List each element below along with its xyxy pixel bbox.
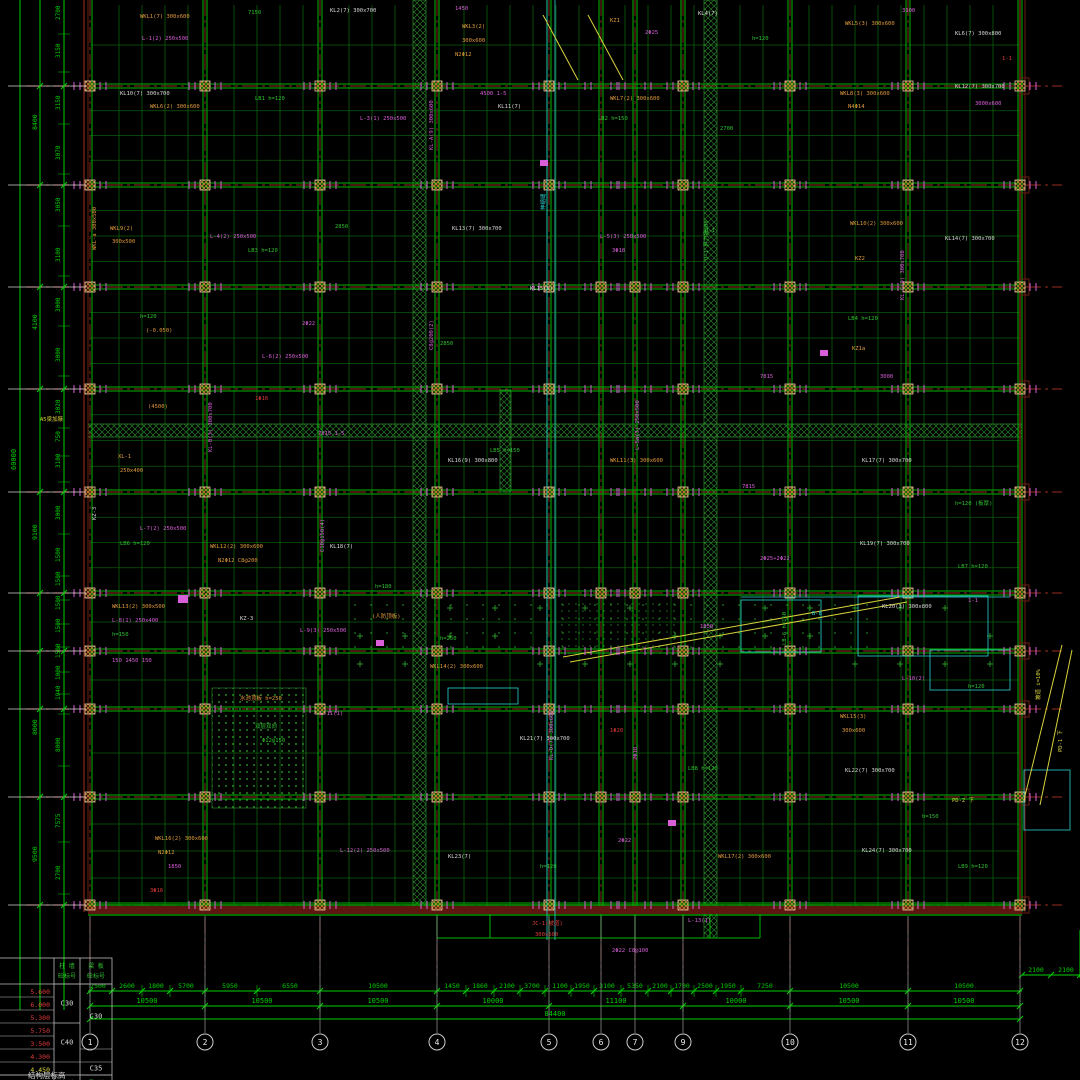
dim-label: 1700 [674, 982, 690, 990]
column-block [903, 646, 913, 656]
column-block [678, 900, 688, 910]
dim-label: 3000 [55, 297, 62, 312]
svg-text:梁 板: 梁 板 [88, 962, 104, 970]
beam-annotation: KZ-3 [240, 616, 253, 622]
beam-annotation: LB6 h=120 [120, 541, 150, 547]
beam-annotation: KL13(7) 300x700 [452, 226, 502, 232]
dim-label: 5950 [222, 982, 238, 990]
column-block [1015, 282, 1025, 292]
overall-dim-bottom: 84400 [544, 1010, 565, 1018]
column-block [1015, 704, 1025, 714]
svg-text:2100: 2100 [1028, 966, 1044, 974]
beam-annotation-vertical: C8@200(2) [429, 320, 435, 350]
column-block [200, 588, 210, 598]
column-block [315, 384, 325, 394]
beam-annotation: LB3 h=120 [248, 248, 278, 254]
concrete-grade: C40 [61, 1039, 74, 1047]
dim-label: 3050 [55, 197, 62, 212]
beam-annotation: h=120 [752, 36, 769, 42]
beam-annotation: B-B [812, 611, 823, 617]
column-block [785, 180, 795, 190]
beam-annotation: WKL15(3) [840, 714, 867, 720]
dim-label: 10500 [368, 982, 388, 990]
beam-annotation: 4500 1-5 [480, 91, 507, 97]
beam-annotation-vertical: KL-C(9) 300x700 [900, 250, 906, 300]
column-block [200, 704, 210, 714]
beam-annotation: KL6(7) 300x800 [955, 31, 1001, 37]
grid-bubble-label: 7 [633, 1038, 638, 1047]
dim-label: 750 [55, 431, 62, 442]
beam-annotation: KL23(7) [448, 854, 471, 860]
beam-annotation-vertical: L-5a(3) 250x500 [635, 400, 641, 450]
beam-annotation: 2850 [335, 224, 348, 230]
elevation-value: 3.500 [30, 1040, 50, 1048]
beam-annotation: KL15(9) [530, 286, 553, 292]
column-block [785, 384, 795, 394]
beam-annotation: Φ12@150 [262, 738, 285, 744]
beam-annotation: WKL14(2) 300x600 [430, 664, 483, 670]
grid-bubble-label: 2 [203, 1038, 208, 1047]
column-block [1015, 900, 1025, 910]
column-block [1015, 588, 1025, 598]
beam-annotation: h=250 [440, 636, 457, 642]
dim-label: 5700 [178, 982, 194, 990]
beam-annotation: 2700 [720, 126, 733, 132]
dim-label: 10000 [725, 997, 746, 1005]
column-block [315, 646, 325, 656]
beam-annotation-vertical: KL-D(7) 300x600 [549, 710, 555, 760]
column-block [903, 704, 913, 714]
beam-annotation: 1Φ16 [255, 396, 268, 402]
elevation-value: 4.300 [30, 1053, 50, 1061]
beam-annotation: (人防顶板) [372, 612, 401, 620]
beam-annotation: WKL7(2) 300x600 [610, 96, 660, 102]
column-block [678, 282, 688, 292]
column-block [432, 81, 442, 91]
beam-annotation: KL22(7) 300x700 [845, 768, 895, 774]
dim-label: 3000 [55, 505, 62, 520]
beam-annotation: KL12(7) 300x700 [955, 84, 1005, 90]
column-block [678, 588, 688, 598]
column-block [315, 81, 325, 91]
column-block [200, 384, 210, 394]
dim-label: 2700 [55, 5, 62, 20]
beam-annotation: L-4(2) 250x500 [210, 234, 256, 240]
grid-bubble-label: 6 [599, 1038, 604, 1047]
beam-annotation: KL20(3) 300x800 [882, 604, 932, 610]
grid-bubble-label: 5 [547, 1038, 552, 1047]
dim-label: 3150 [55, 95, 62, 110]
beam-annotation: 2Φ22 [302, 321, 315, 327]
beam-annotation: N4Φ14 [848, 104, 865, 110]
column-block [785, 792, 795, 802]
column-block [1015, 646, 1025, 656]
column-block [596, 792, 606, 802]
beam-annotation: WKL8(3) 300x600 [840, 91, 890, 97]
beam-annotation: 3Φ16 [150, 888, 163, 894]
concrete-grade: C30 [61, 1000, 74, 1008]
beam-annotation-vertical: 伸缩缝 [539, 193, 547, 210]
column-block [85, 588, 95, 598]
column-block [630, 282, 640, 292]
svg-text:砼标号: 砼标号 [87, 972, 105, 980]
beam-annotation: KL18(7) [330, 544, 353, 550]
column-block [85, 792, 95, 802]
column-block [785, 900, 795, 910]
beam-annotation: 7815 [760, 374, 773, 380]
cad-viewport: WKL1(7) 300x600L-1(2) 250x5007150KL2(7) … [0, 0, 1080, 1080]
beam-annotation: 1450 [455, 6, 468, 12]
beam-annotation: 7150 [248, 10, 261, 16]
dim-label: 9500 [31, 846, 39, 862]
column-block [785, 588, 795, 598]
beam-annotation: WKL3(2) [462, 24, 485, 30]
beam-annotation: L-10(2) [902, 676, 925, 682]
beam-annotation: KL16(9) 300x800 [448, 458, 498, 464]
beam-annotation: KL11(7) [498, 104, 521, 110]
grid-bubble-label: 12 [1015, 1038, 1025, 1047]
dim-label: 1500 [55, 643, 62, 658]
column-block [315, 487, 325, 497]
column-block [903, 588, 913, 598]
dim-label: 7575 [55, 813, 62, 828]
beam-annotation-vertical: Q-1 剪力墙300 [702, 220, 710, 260]
beam-annotation: 2Φ22 [618, 838, 631, 844]
column-block [200, 900, 210, 910]
column-block [678, 792, 688, 802]
beam-annotation: L-1(2) 250x500 [142, 36, 188, 42]
column-block [596, 282, 606, 292]
dim-label: 3020 [55, 399, 62, 414]
dim-label: 4100 [31, 314, 39, 330]
beam-annotation: A5梁加腋 [40, 415, 64, 423]
beam-annotation: PD-2 下 [952, 797, 975, 804]
column-block [432, 792, 442, 802]
column-block [85, 900, 95, 910]
column-block [85, 487, 95, 497]
column-block [544, 384, 554, 394]
beam-annotation-vertical: PD-1 下 [1057, 729, 1064, 752]
dim-label: 6550 [282, 982, 298, 990]
beam-annotation: 1Φ20 [610, 728, 623, 734]
beam-annotation: KZ1 [610, 18, 620, 24]
grid-bubble-label: 1 [88, 1038, 93, 1047]
column-block [85, 384, 95, 394]
column-block [432, 588, 442, 598]
dim-label: 1950 [574, 982, 590, 990]
beam-annotation: WKL9(2) [110, 226, 133, 232]
dim-label: 10500 [839, 982, 859, 990]
column-block [544, 588, 554, 598]
dim-label: 11100 [605, 997, 626, 1005]
dim-label: 1950 [720, 982, 736, 990]
beam-annotation: KL24(7) 300x700 [862, 848, 912, 854]
dim-label: 1500 [55, 571, 62, 586]
beam-annotation: L-13(1) [688, 918, 711, 924]
beam-annotation: (4500) [148, 404, 168, 410]
column-block [1015, 180, 1025, 190]
beam-annotation: KL19(7) 300x700 [860, 541, 910, 547]
beam-annotation: LB9 h=120 [958, 864, 988, 870]
column-block [315, 900, 325, 910]
column-block [785, 282, 795, 292]
beam-annotation: N2Φ12 [158, 850, 175, 856]
dim-label: 1800 [148, 982, 164, 990]
beam-annotation: WKL5(3) 300x600 [845, 21, 895, 27]
elevation-value: 6.000 [30, 1001, 50, 1009]
beam-annotation: 3000x600 [975, 101, 1002, 107]
column-block [596, 588, 606, 598]
column-block [903, 81, 913, 91]
column-block [200, 282, 210, 292]
dim-label: 10500 [367, 997, 388, 1005]
column-block [544, 81, 554, 91]
column-block [432, 384, 442, 394]
beam-annotation: 1-1 [1002, 56, 1012, 62]
beam-annotation: L-11(1) [320, 711, 343, 717]
dim-label: 3700 [524, 982, 540, 990]
beam-annotation: 3000 [880, 374, 893, 380]
beam-annotation: KZ2 [855, 256, 865, 262]
beam-annotation: KL2(7) 300x700 [330, 8, 376, 14]
beam-annotation: 300x600 [462, 38, 485, 44]
dim-label: 2700 [55, 865, 62, 880]
beam-annotation: h=120 (板厚) [955, 499, 993, 507]
dim-label: 3150 [55, 43, 62, 58]
column-block [432, 900, 442, 910]
cad-canvas: WKL1(7) 300x600L-1(2) 250x5007150KL2(7) … [0, 0, 1080, 1080]
dim-label: 3100 [599, 982, 615, 990]
column-block [903, 180, 913, 190]
beam-annotation: 300x600 [842, 728, 865, 734]
beam-annotation: 双层双向 [255, 722, 277, 730]
column-block [85, 180, 95, 190]
beam-annotation: 300x600 [535, 932, 558, 938]
dim-label: 1500 [55, 595, 62, 610]
column-block [200, 792, 210, 802]
dim-label: 10500 [953, 997, 974, 1005]
column-block [630, 588, 640, 598]
beam-annotation: h=120 [968, 684, 985, 690]
beam-annotation-vertical: WKL-a 300x500 [92, 207, 98, 250]
beam-annotation: 2Φ22 C8@100 [612, 948, 648, 954]
beam-annotation: L-9(3) 250x500 [300, 628, 346, 634]
dim-label: 3070 [55, 145, 62, 160]
column-block [315, 282, 325, 292]
column-block [85, 282, 95, 292]
column-block [544, 180, 554, 190]
dim-label: 3100 [55, 247, 62, 262]
column-block [678, 704, 688, 714]
column-block [85, 81, 95, 91]
elevation-value: 5.300 [30, 1014, 50, 1022]
dim-label: 8000 [31, 719, 39, 735]
column-block [544, 487, 554, 497]
column-block [785, 81, 795, 91]
column-block [85, 704, 95, 714]
beam-annotation: WKL6(2) 300x600 [150, 104, 200, 110]
beam-annotation: 1850 [700, 624, 713, 630]
column-block [903, 487, 913, 497]
beam-annotation: JC-1(坡道) [532, 919, 563, 927]
beam-annotation: WKL16(2) 300x600 [155, 836, 208, 842]
beam-annotation: N2Φ12 C8@200 [218, 558, 258, 564]
column-block [678, 180, 688, 190]
grid-bubble-label: 4 [435, 1038, 440, 1047]
column-block [200, 81, 210, 91]
column-block [432, 282, 442, 292]
beam-annotation: WKL17(2) 300x600 [718, 854, 771, 860]
beam-annotation: h=150 [922, 814, 939, 820]
beam-annotation: 300x500 [112, 239, 135, 245]
beam-annotation: 2Φ25 [645, 30, 658, 36]
beam-annotation: 250x400 [120, 468, 143, 474]
beam-annotation: 150 1450 150 [112, 658, 152, 664]
beam-annotation: L-3(1) 250x500 [360, 116, 406, 122]
dim-label: 2600 [119, 982, 135, 990]
dim-label: 8400 [31, 114, 39, 130]
column-block [1015, 792, 1025, 802]
beam-annotation: 7815 [742, 484, 755, 490]
grid-bubble-label: 11 [903, 1038, 913, 1047]
column-block [432, 180, 442, 190]
column-block [1015, 384, 1025, 394]
beam-annotation: WKL10(2) 300x600 [850, 221, 903, 227]
dim-label: 1100 [552, 982, 568, 990]
column-block [544, 900, 554, 910]
beam-annotation: LB5 h=150 [490, 448, 520, 454]
column-block [200, 487, 210, 497]
beam-annotation: L-8(1) 250x400 [112, 618, 158, 624]
column-block [1015, 487, 1025, 497]
column-block [315, 792, 325, 802]
beam-annotation: 7815 1-5 [318, 431, 345, 437]
beam-annotation: WKL13(2) 300x500 [112, 604, 165, 610]
svg-text:砼标号: 砼标号 [58, 972, 76, 980]
drawing-note: 结构层标高 [28, 1070, 66, 1080]
column-block [785, 704, 795, 714]
beam-annotation: LB4 h=120 [848, 316, 878, 322]
elevation-value: 5.750 [30, 1027, 50, 1035]
beam-annotation-vertical: 坡道 i=10% [1034, 668, 1042, 700]
dim-label: 1450 [444, 982, 460, 990]
dim-label: 10500 [954, 982, 974, 990]
beam-annotation: KL14(7) 300x700 [945, 236, 995, 242]
beam-annotation: LB7 h=120 [958, 564, 988, 570]
svg-text:柱 墙: 柱 墙 [59, 962, 75, 970]
beam-annotation: (-0.050) [146, 328, 173, 334]
beam-annotation: h=120 [540, 864, 557, 870]
column-block [432, 704, 442, 714]
column-block [200, 180, 210, 190]
dim-label: 2500 [90, 982, 106, 990]
beam-annotation-vertical: KZ-3 [92, 507, 98, 520]
column-block [85, 646, 95, 656]
dim-label: 2100 [499, 982, 515, 990]
beam-annotation-vertical: LB-6 h=150 [782, 612, 788, 645]
column-block [315, 588, 325, 598]
beam-annotation: WKL12(2) 300x600 [210, 544, 263, 550]
dim-label: 10500 [136, 997, 157, 1005]
dim-label: 10000 [482, 997, 503, 1005]
beam-annotation: 3100 [902, 8, 915, 14]
beam-annotation: LB2 h=150 [598, 116, 628, 122]
beam-annotation: 3Φ18 [612, 248, 625, 254]
dim-label: 8000 [55, 737, 62, 752]
column-block [785, 487, 795, 497]
svg-text:2100: 2100 [1058, 966, 1074, 974]
beam-annotation-vertical: KL-B(3) 300x700 [208, 402, 214, 452]
beam-annotation: N2Φ12 [455, 52, 472, 58]
beam-annotation: KZ1a [852, 346, 865, 352]
column-block [432, 487, 442, 497]
beam-annotation: WKL11(3) 300x600 [610, 458, 663, 464]
dim-label: 1000 [55, 665, 62, 680]
column-block [315, 180, 325, 190]
column-block [678, 81, 688, 91]
column-block [544, 792, 554, 802]
concrete-grade: C35 [90, 1065, 103, 1073]
dim-label: 2500 [697, 982, 713, 990]
column-block [1015, 81, 1025, 91]
beam-annotation: 2Φ25+2Φ22 [760, 556, 790, 562]
overall-dim-left: 60000 [10, 449, 18, 470]
elevation-value: 5.600 [30, 988, 50, 996]
beam-annotation: KL4(7) [698, 11, 718, 17]
beam-annotation: h=120 [140, 314, 157, 320]
beam-annotation: LB8 h=120 [688, 766, 718, 772]
dim-label: 1860 [472, 982, 488, 990]
dim-label: 1500 [55, 547, 62, 562]
dim-label: 2100 [652, 982, 668, 990]
dim-label: 3000 [55, 347, 62, 362]
grid-bubble-label: 3 [318, 1038, 323, 1047]
beam-annotation: L-7(2) 250x500 [140, 526, 186, 532]
beam-annotation: WKL1(7) 300x600 [140, 14, 190, 20]
beam-annotation: L-12(2) 250x500 [340, 848, 390, 854]
concrete-grade: C30 [90, 1013, 103, 1021]
beam-annotation: 1850 [168, 864, 181, 870]
dim-label: 7250 [757, 982, 773, 990]
column-block [903, 900, 913, 910]
beam-annotation: 2850 [440, 341, 453, 347]
dim-label: 10500 [251, 997, 272, 1005]
beam-annotation: h=150 [112, 632, 129, 638]
grid-bubble-label: 10 [785, 1038, 795, 1047]
beam-annotation: L-5(3) 250x500 [600, 234, 646, 240]
beam-annotation-vertical: C10@150(4) [320, 519, 326, 552]
beam-annotation: KL17(7) 300x700 [862, 458, 912, 464]
grid-bubble-label: 9 [681, 1038, 686, 1047]
beam-annotation: L-6(2) 250x500 [262, 354, 308, 360]
beam-annotation: KL10(7) 300x700 [120, 91, 170, 97]
column-block [903, 792, 913, 802]
beam-annotation: 水池顶板 h=250 [240, 694, 282, 702]
beam-annotation: LB1 h=120 [255, 96, 285, 102]
beam-annotation-vertical: KL-A(9) 300x600 [429, 100, 435, 150]
dim-label: 3100 [55, 453, 62, 468]
column-block [630, 792, 640, 802]
dim-label: 9100 [31, 524, 39, 540]
beam-annotation: XL-1 [118, 454, 131, 460]
beam-annotation: 1-1 [968, 598, 978, 604]
beam-annotation: KL21(7) 300x700 [520, 736, 570, 742]
dim-label: 1500 [55, 618, 62, 633]
dim-label: 1940 [55, 685, 62, 700]
beam-annotation: h=180 [375, 584, 392, 590]
column-block [903, 384, 913, 394]
column-block [678, 487, 688, 497]
